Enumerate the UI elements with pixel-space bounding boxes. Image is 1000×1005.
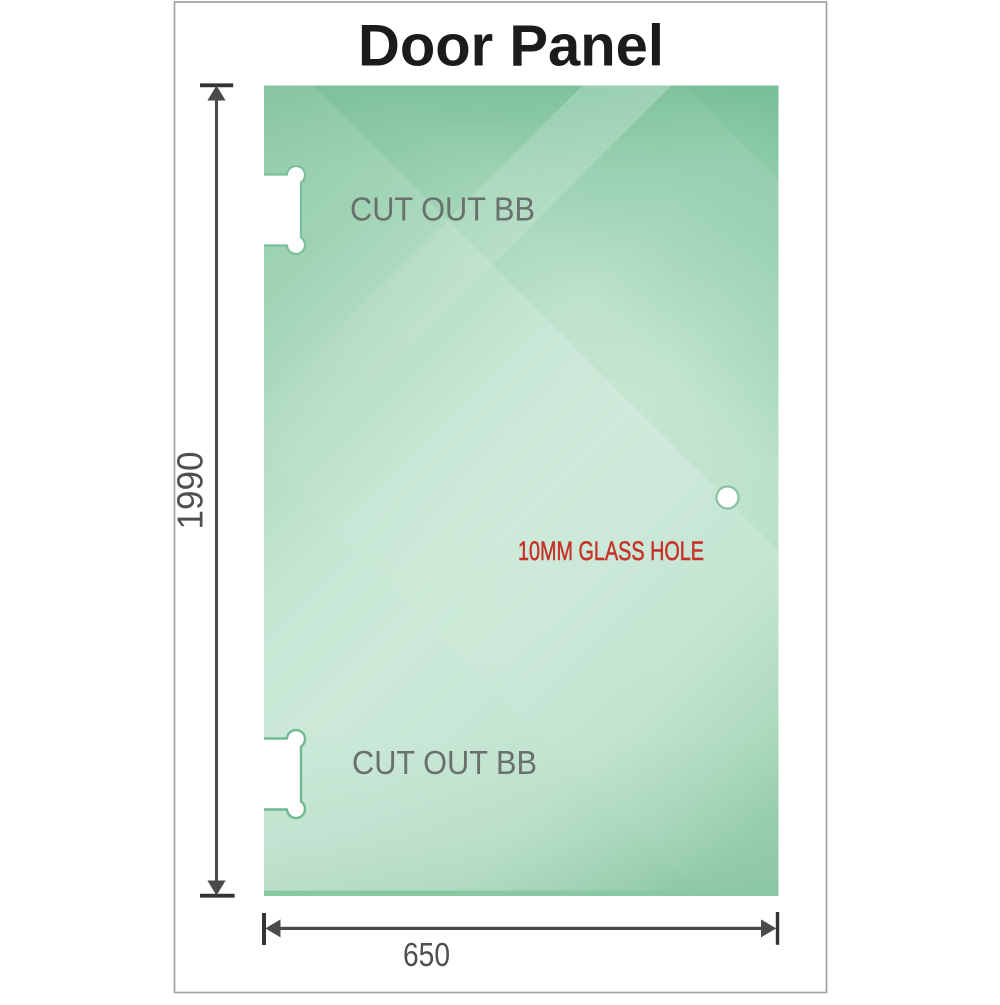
svg-text:CUT OUT BB: CUT OUT BB <box>350 191 535 228</box>
svg-text:1990: 1990 <box>170 452 211 530</box>
svg-text:650: 650 <box>403 936 450 973</box>
svg-text:Door Panel: Door Panel <box>358 14 664 79</box>
svg-text:10MM GLASS HOLE: 10MM GLASS HOLE <box>518 536 704 566</box>
svg-text:CUT OUT BB: CUT OUT BB <box>352 744 537 781</box>
